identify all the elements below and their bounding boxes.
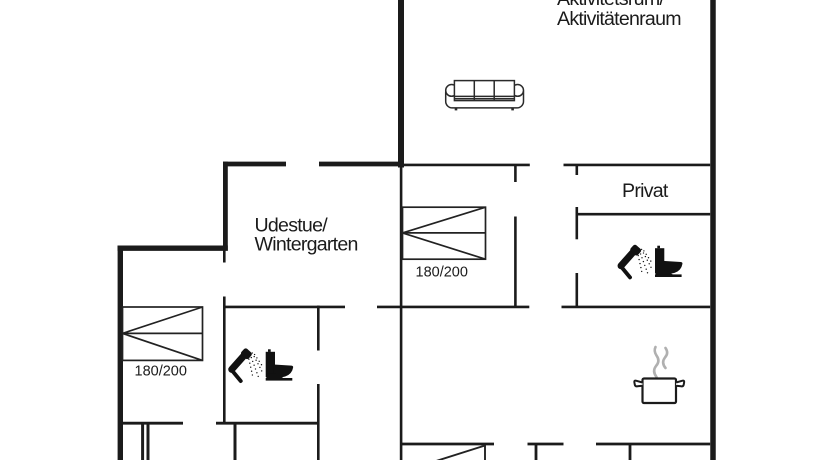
svg-text:Privat: Privat [622,180,669,202]
svg-text:180/200: 180/200 [416,265,468,281]
svg-text:Wintergarten: Wintergarten [255,234,358,256]
svg-text:180/200: 180/200 [135,364,187,380]
svg-text:Aktivitätenraum: Aktivitätenraum [557,8,681,30]
